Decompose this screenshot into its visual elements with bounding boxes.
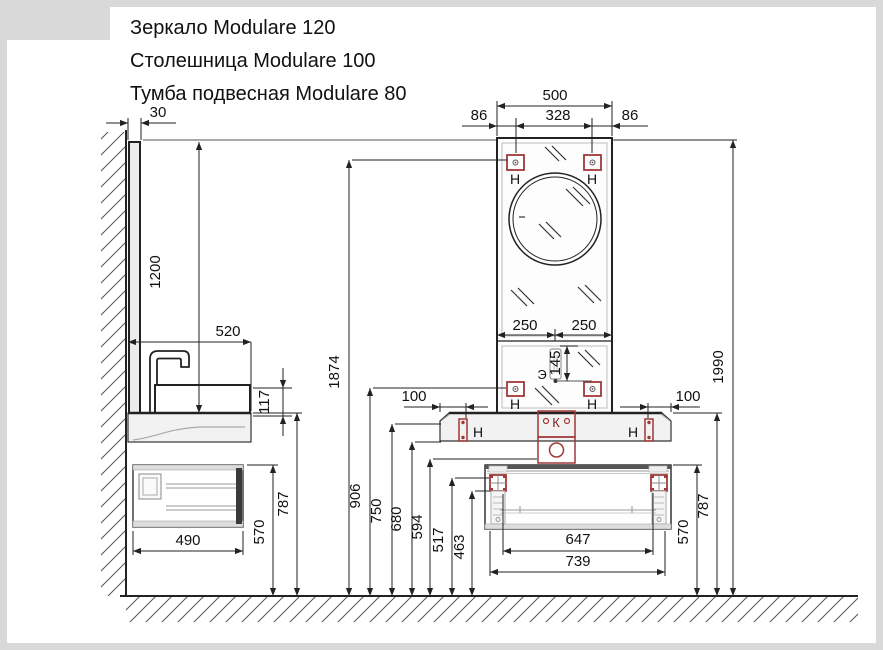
title-cabinet: Тумба подвесная Modulare 80 [130,83,407,105]
drawer-front-edge [236,468,242,524]
svg-text:787: 787 [275,491,292,516]
svg-text:30: 30 [150,104,167,121]
svg-text:680: 680 [388,506,405,531]
dim-cabinet-top-left: 570 [247,465,278,596]
svg-text:328: 328 [545,107,570,124]
svg-text:490: 490 [175,532,200,549]
svg-text:739: 739 [565,553,590,570]
cabinet-front [485,465,671,529]
mount-label: Н [473,424,483,440]
cabinet-mount-right [651,475,668,492]
svg-text:750: 750 [368,498,385,523]
mount-label: Н [587,171,597,187]
mount-label: Н [510,171,520,187]
dim-cabinet-top-right: 570 [673,465,702,596]
svg-text:517: 517 [430,527,447,552]
cabinet-side [133,465,243,527]
svg-text:1990: 1990 [710,350,727,383]
svg-text:86: 86 [471,107,488,124]
wall-hatch [101,132,126,596]
title-countertop: Столешница Modulare 100 [130,50,376,72]
svg-text:647: 647 [565,531,590,548]
svg-text:463: 463 [451,534,468,559]
title-mirror: Зеркало Modulare 120 [130,17,336,39]
svg-text:906: 906 [347,483,364,508]
svg-text:570: 570 [675,519,692,544]
dim-countertop-left: 787 [253,413,302,596]
mirror-side-profile [129,142,140,413]
outlet-label: Э [537,367,546,382]
svg-text:86: 86 [622,107,639,124]
svg-text:1200: 1200 [147,255,164,288]
svg-text:787: 787 [695,493,712,518]
cabinet-mount-left [490,475,507,492]
svg-text:1874: 1874 [326,355,343,388]
hinge-strip-right [652,491,666,524]
drawing-page: Зеркало Modulare 120 Столешница Modulare… [0,0,883,650]
mount-label: Н [587,396,597,412]
floor-section [120,596,858,622]
svg-text:250: 250 [512,317,537,334]
basin-side [155,385,250,413]
countertop-side [128,413,251,442]
floor-hatch [126,596,858,622]
svg-text:250: 250 [571,317,596,334]
dim-basin-height: 117 [253,368,292,436]
siphon-label: К [552,415,560,430]
drain-hole [550,443,564,457]
svg-text:100: 100 [401,388,426,405]
title-block: Зеркало Modulare 120 Столешница Modulare… [130,17,407,105]
svg-text:594: 594 [409,514,426,539]
dim-463: 463 [451,491,489,596]
svg-text:570: 570 [251,519,268,544]
svg-text:100: 100 [675,388,700,405]
wall-section [101,130,126,596]
svg-text:520: 520 [215,323,240,340]
countertop-front: Н Н К [440,411,671,463]
dim-cabinet-depth: 490 [133,531,243,555]
svg-text:117: 117 [256,390,273,414]
scan-corner-patch [0,0,110,40]
mount-label: Н [510,396,520,412]
mount-label: Н [628,424,638,440]
technical-drawing: Зеркало Modulare 120 Столешница Modulare… [0,0,883,650]
svg-text:500: 500 [542,87,567,104]
svg-text:145: 145 [547,350,564,375]
